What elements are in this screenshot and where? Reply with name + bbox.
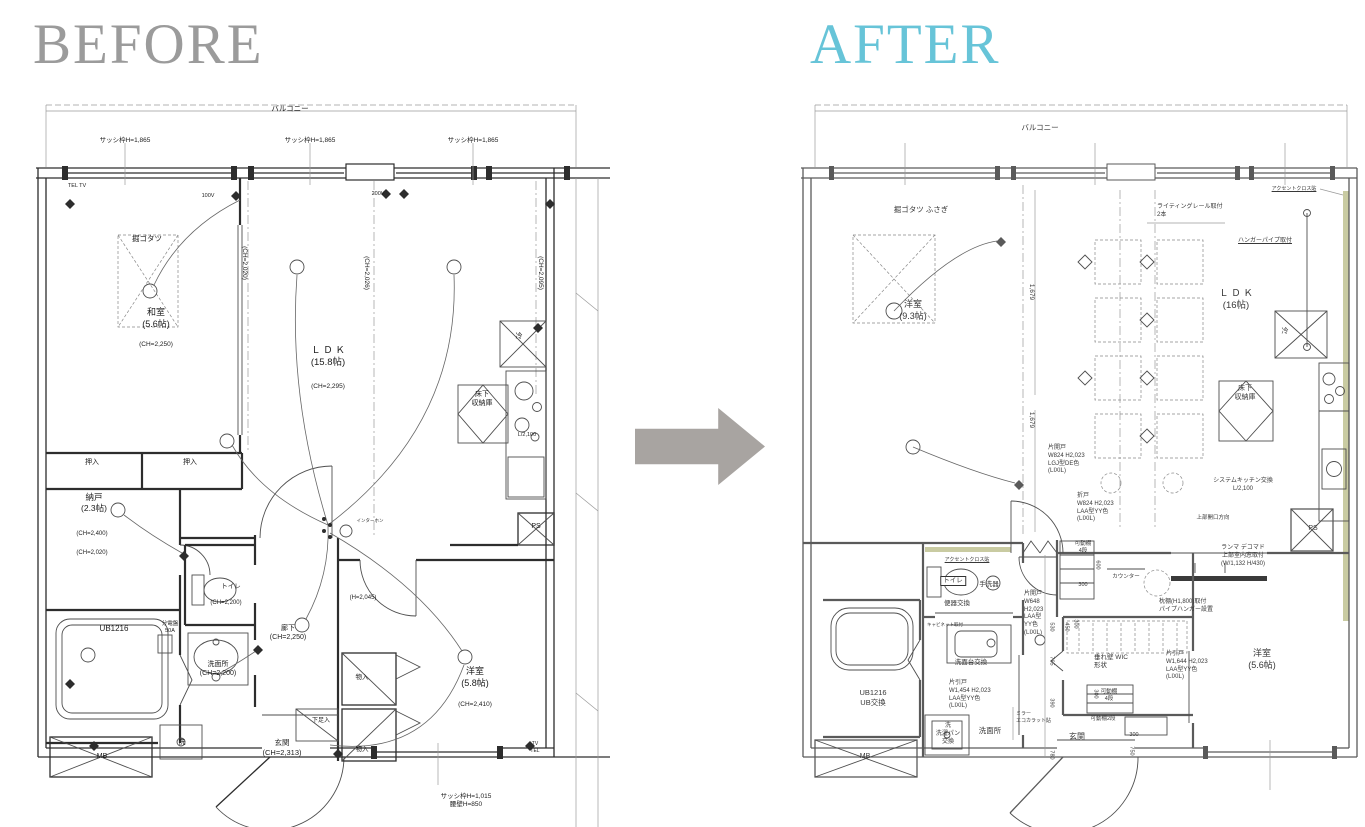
plan-label: 300 <box>1078 582 1087 589</box>
room-washitsu-label: 和室 (5.6帖) <box>142 307 170 330</box>
after-plan: バルコニーアクセントクロス貼掘ゴタツ ふさぎ洋室 (9.3帖)ライティングレール… <box>795 95 1365 827</box>
plan-label: 床下 収納庫 <box>472 390 493 408</box>
plan-label: 便器交換 <box>944 600 970 608</box>
plan-label: 530 <box>1047 622 1054 631</box>
plan-label: ランマ デコマド 上部室内窓取付 (W/1,132 H/430) <box>1221 545 1265 568</box>
plan-label: システムキッチン交換 L/2,100 <box>1213 478 1273 494</box>
plan-label: カウンター <box>1112 574 1140 581</box>
before-title: BEFORE <box>33 12 264 77</box>
plan-label: L/2,100 <box>518 432 536 439</box>
before-to-after-arrow-icon <box>635 408 765 485</box>
after-title: AFTER <box>810 12 1001 77</box>
plan-label: キャビネット取付 <box>927 622 963 628</box>
plan-label: 可動棚 4段 <box>1101 689 1118 703</box>
plan-label: 1,679 <box>1027 284 1035 300</box>
before-after-floorplan-comparison: BEFORE AFTER <box>0 0 1365 827</box>
plan-label: (CH=2,400) <box>76 531 107 539</box>
plan-label: 床下 収納庫 <box>1235 384 1256 402</box>
plan-label: 下足入 <box>312 718 330 726</box>
plan-label: 可動棚 4段 <box>1075 541 1092 555</box>
plan-label: 掘ゴタツ ふさぎ <box>894 205 949 215</box>
plan-label: 450 <box>1062 622 1069 631</box>
plan-label: 200V <box>372 191 385 198</box>
plan-label: TV TEL <box>530 741 539 754</box>
plan-label: (CH=2,020) <box>76 550 107 558</box>
room-ldk-label: Ｌ Ｄ Ｋ (16帖) <box>1219 288 1253 313</box>
plan-label: 枕棚(H1,800)取付 パイプハンガー設置 <box>1159 599 1213 615</box>
plan-label: 物入 <box>356 746 369 754</box>
room-rouka-label: 廊下 (CH=2,250) <box>270 624 306 642</box>
room-senmenjo-label: 洗面所 <box>979 726 1002 736</box>
room-nando-label: 納戸 (2.3帖) <box>81 492 107 514</box>
plan-label: ライティングレール取付 2本 <box>1157 204 1223 220</box>
plan-label: ミラー エコカラット貼 <box>1016 711 1051 724</box>
plan-label: 100V <box>202 193 215 200</box>
plan-label: 冷 <box>516 332 523 341</box>
plan-label: サッシ枠H=1,865 <box>448 137 499 145</box>
plan-label: サッシ枠H=1,015 腰壁H=850 <box>441 793 492 810</box>
balcony-label: バルコニー <box>271 104 308 114</box>
room-yoshitsu-label: 洋室 (5.8帖) <box>461 666 489 689</box>
plan-label: インターホン <box>357 518 384 524</box>
room-senmenjo-label: 洗面所 (CH=2,200) <box>200 660 236 678</box>
plan-label: 765 <box>1047 656 1054 665</box>
plan-label: (CH=2,095) <box>536 256 544 290</box>
plan-label: 洗面台交換 <box>955 659 988 667</box>
plan-label: 片引戸 W1,644 H2,023 LAA型YY色 (LIXIL) <box>1166 651 1208 682</box>
plan-label: 片開戸 W648 H2,023 LAA型 YY色 (LIXIL) <box>1024 591 1043 638</box>
before-plan: バルコニーサッシ枠H=1,865サッシ枠H=1,865サッシ枠H=1,865TE… <box>30 95 610 827</box>
room-ldk-label: Ｌ Ｄ Ｋ (15.8帖) <box>311 345 345 370</box>
plan-label: 1,679 <box>1027 412 1035 428</box>
plan-label: (CH=2,295) <box>311 383 345 391</box>
plan-label: (CH=2,020) <box>240 246 248 280</box>
plan-label: 750 <box>1127 746 1134 755</box>
plan-label: アクセントクロス貼 <box>945 557 990 564</box>
plan-label: (CH=2,200) <box>210 600 241 608</box>
plan-label: 押入 <box>85 458 99 467</box>
after-plan-labels: バルコニーアクセントクロス貼掘ゴタツ ふさぎ洋室 (9.3帖)ライティングレール… <box>795 95 1365 827</box>
plan-label: トイレ <box>940 576 966 586</box>
room-ub-label: UB1216 UB交換 <box>859 688 886 708</box>
plan-label: 300 <box>1071 619 1078 628</box>
plan-label: (CH=2,410) <box>458 701 492 709</box>
plan-label: 780 <box>1047 750 1054 759</box>
plan-label: PS <box>1308 524 1317 533</box>
plan-label: (CH=2,250) <box>139 341 173 349</box>
plan-label: 掘ゴタツ <box>132 234 162 244</box>
plan-label: サッシ枠H=1,865 <box>285 137 336 145</box>
room-yoshitsu56-label: 洋室 (5.6帖) <box>1248 648 1276 671</box>
plan-label: 上部開口方向 <box>1196 515 1229 522</box>
plan-label: 冷 <box>1282 327 1289 336</box>
plan-label: 可動棚2段 <box>1090 716 1115 723</box>
plan-label: トイレ <box>221 583 241 591</box>
balcony-label: バルコニー <box>1021 123 1058 133</box>
plan-label: 洗 洗濯パン 交換 <box>936 723 960 746</box>
plan-label: 片引戸 W1,454 H2,023 LAA型YY色 (LIXIL) <box>949 680 991 711</box>
plan-label: 300 <box>1129 732 1138 739</box>
room-ub-label: UB1216 <box>100 624 129 634</box>
plan-label: (CH=2,026) <box>362 256 370 290</box>
plan-label: 折戸 W824 H2,023 LAA型YY色 (LIXIL) <box>1077 493 1114 524</box>
plan-label: MB <box>860 752 871 761</box>
plan-label: サッシ枠H=1,865 <box>100 137 151 145</box>
plan-label: 600 <box>1093 560 1100 569</box>
plan-label: 洗 <box>179 738 186 747</box>
plan-label: 押入 <box>183 458 197 467</box>
plan-label: 390 <box>1047 698 1054 707</box>
plan-label: アクセントクロス貼 <box>1272 186 1317 193</box>
plan-label: PS <box>531 522 540 531</box>
plan-label: 片開戸 W824 H2,023 LGJ型DE色 (LIXIL) <box>1048 445 1085 476</box>
plan-label: (H=2,045) <box>350 595 377 603</box>
room-yoshitsu93-label: 洋室 (9.3帖) <box>899 299 927 322</box>
plan-label: 垂れ壁 WIC 形状 <box>1094 654 1128 671</box>
plan-label: 300 <box>1091 689 1098 698</box>
room-genkan-label: 玄関 <box>1069 732 1085 742</box>
plan-label: ハンガーパイプ取付 <box>1238 238 1292 246</box>
before-plan-labels: バルコニーサッシ枠H=1,865サッシ枠H=1,865サッシ枠H=1,865TE… <box>30 95 610 827</box>
plan-label: MB <box>97 752 108 761</box>
room-genkan-label: 玄関 (CH=2,313) <box>263 738 302 758</box>
plan-label: 物入 <box>356 674 369 682</box>
plan-label: TEL TV <box>68 183 86 190</box>
plan-label: 分電盤 50A <box>162 621 179 635</box>
plan-label: 手洗器 <box>979 581 999 589</box>
